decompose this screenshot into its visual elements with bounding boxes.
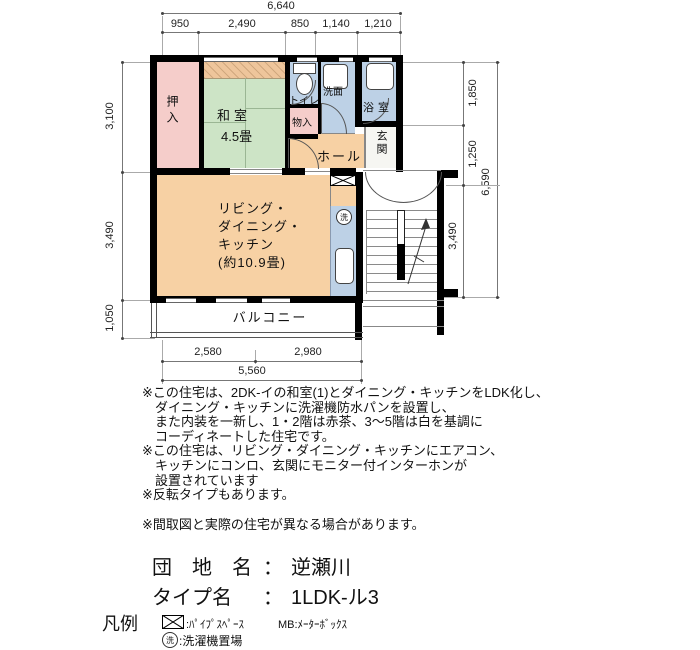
dim-tick <box>161 379 164 382</box>
stair-edge-line <box>366 210 367 294</box>
dim-ext <box>122 172 150 173</box>
wall <box>199 62 204 168</box>
landing-line <box>363 326 444 327</box>
pipe-space-icon <box>330 175 356 186</box>
hall-door-leaf <box>288 138 289 168</box>
label-senmen: 洗面 <box>323 83 343 98</box>
landing-line <box>363 306 444 307</box>
washing-machine-label: 洗 <box>340 212 348 223</box>
dim-tick <box>462 124 465 127</box>
dim-line <box>497 62 498 297</box>
window <box>166 298 196 303</box>
balcony-rail-line <box>150 337 363 338</box>
wall <box>444 170 458 178</box>
label-monoire: 物入 <box>292 114 312 129</box>
window <box>339 57 353 62</box>
wall <box>355 303 362 340</box>
dim-left-2: 1,050 <box>104 293 116 343</box>
window <box>262 298 290 303</box>
wall <box>330 168 356 175</box>
dim-tick <box>496 296 499 299</box>
balcony-rail-line <box>150 332 363 333</box>
dim-tick <box>462 61 465 64</box>
type-colon: ： <box>263 581 283 610</box>
note-line: ダイニング・キッチンに洗濯機防水パンを設置し、 <box>142 401 549 416</box>
landing-line <box>363 300 444 301</box>
danchi-colon: ： <box>263 551 283 580</box>
dim-bottom-seg-0: 2,580 <box>178 346 238 358</box>
type-name-value: 1LDK-ル3 <box>291 581 379 610</box>
dim-line <box>162 361 361 362</box>
dim-bottom-seg-1: 2,980 <box>278 346 338 358</box>
label-balcony: バルコニー <box>210 307 330 326</box>
stair-door-left-arc <box>365 172 404 203</box>
legend-laundry-label: :洗濯機置場 <box>179 632 242 649</box>
dim-tick <box>161 12 164 15</box>
legend-mb-label: MB:ﾒｰﾀｰﾎﾞｯｸｽ <box>278 616 347 632</box>
dim-tick <box>360 360 363 363</box>
note-line: ※反転タイプもあります。 <box>142 488 549 503</box>
dim-tick <box>161 360 164 363</box>
danchi-name-label: 団 地 名 <box>152 551 252 580</box>
dim-tick <box>496 61 499 64</box>
dim-ext <box>122 62 150 63</box>
note-line: 設置されています <box>142 474 549 489</box>
dim-line <box>122 62 123 338</box>
dim-ext <box>122 338 155 339</box>
dim-tick <box>121 61 124 64</box>
dim-ext <box>446 185 500 186</box>
dim-ext <box>285 34 286 55</box>
wall <box>150 168 230 175</box>
label-hall: ホール <box>317 146 362 165</box>
dim-left-0: 3,100 <box>104 91 116 141</box>
dim-tick <box>314 31 317 34</box>
legend-pipe-space-label: :ﾊﾟｲﾌﾟｽﾍﾟｰｽ <box>186 616 244 632</box>
label-ldk-line4: (約10.9畳) <box>218 254 302 272</box>
dim-left-1: 3,490 <box>104 210 116 260</box>
washing-machine-icon: 洗 <box>336 209 352 225</box>
dim-ext <box>198 34 199 55</box>
bathtub-icon <box>366 63 394 90</box>
notes-block: ※この住宅は、2DK-イの和室(1)とダイニング・キッチンをLDK化し、 ダイニ… <box>142 386 549 532</box>
note-line: ※この住宅は、リビング・ダイニング・キッチンにエアコン、 <box>142 444 549 459</box>
danchi-name-value: 逆瀬川 <box>291 551 351 580</box>
hall-ldk-line <box>305 171 330 172</box>
wall <box>444 289 458 297</box>
wall <box>150 55 157 303</box>
dim-line <box>162 13 400 14</box>
balcony-side-line <box>151 303 152 337</box>
dim-tick <box>356 31 359 34</box>
dim-tick <box>360 379 363 382</box>
dim-top-total: 6,640 <box>251 0 311 12</box>
dim-ext <box>403 125 465 126</box>
label-washitsu: 和室 <box>217 105 251 124</box>
label-washitsu-size: 4.5畳 <box>221 126 252 145</box>
genkan-threshold-line <box>363 170 441 171</box>
wall <box>437 170 444 335</box>
kitchen-sink-icon <box>335 248 354 284</box>
dim-tick <box>161 31 164 34</box>
washing-machine-legend-symbol: 洗 <box>166 635 174 646</box>
dim-bottom-total: 5,560 <box>222 365 282 377</box>
type-name-label: タイプ名 <box>152 581 232 610</box>
dim-line <box>463 62 464 297</box>
kitchen-strip-line <box>330 186 331 206</box>
dim-tick <box>121 299 124 302</box>
window <box>216 298 247 303</box>
dim-right-0: 1,850 <box>467 68 479 118</box>
balcony-side-line <box>156 303 157 337</box>
label-genkan: 玄関 <box>373 130 389 156</box>
dim-ext <box>122 300 150 301</box>
dim-right-1: 1,250 <box>467 129 479 179</box>
dim-tick <box>121 171 124 174</box>
window <box>297 57 317 62</box>
window <box>204 57 278 62</box>
label-toilet: トイレ <box>289 92 319 107</box>
note-line: また内装を一新し、1・2階は赤茶、3～5階は白を基調に <box>142 415 549 430</box>
fusuma-line <box>230 169 282 170</box>
label-ldk-line1: リビング・ <box>218 200 302 218</box>
label-oshiire: 押入 <box>164 95 181 127</box>
dim-top-seg-0: 950 <box>150 18 210 30</box>
stair-direction-arrow <box>402 216 436 288</box>
dim-tick <box>197 31 200 34</box>
dim-ext <box>403 62 500 63</box>
dim-tick <box>399 31 402 34</box>
dim-ext <box>162 16 163 55</box>
wall <box>396 55 403 172</box>
wall <box>282 168 290 175</box>
note-line: ※この住宅は、2DK-イの和室(1)とダイニング・キッチンをLDK化し、 <box>142 386 549 401</box>
dim-ext <box>357 34 358 55</box>
dim-top-seg-4: 1,210 <box>348 18 408 30</box>
dim-right-total: 6,590 <box>480 157 492 207</box>
label-ldk-line2: ダイニング・ <box>218 218 302 236</box>
label-ldk-line3: キッチン <box>218 236 302 254</box>
dim-ext <box>444 297 500 298</box>
senmen-door-leaf <box>321 103 322 133</box>
dim-tick <box>399 12 402 15</box>
dim-ext <box>315 34 316 55</box>
dim-tick <box>462 296 465 299</box>
hall-genkan-line <box>364 127 366 168</box>
dim-tick <box>284 31 287 34</box>
dim-tick <box>254 360 257 363</box>
legend-title: 凡例 <box>102 610 138 636</box>
fusuma-line <box>230 173 282 174</box>
dim-tick <box>462 184 465 187</box>
wall <box>355 55 362 127</box>
note-line: ※間取図と実際の住宅が異なる場合があります。 <box>142 518 549 533</box>
dim-line <box>162 380 361 381</box>
wall <box>356 172 363 303</box>
floor-plan-page: 洗 <box>0 0 700 650</box>
note-line: キッチンにコンロ、玄関にモニター付インターホンが <box>142 459 549 474</box>
dim-top-seg-1: 2,490 <box>212 18 272 30</box>
washitsu-closet-strip <box>204 62 285 79</box>
dim-right-2: 3,490 <box>447 211 459 261</box>
window <box>369 57 392 62</box>
pipe-space-legend-icon <box>162 615 184 629</box>
dim-ext <box>400 16 401 55</box>
note-line: コーディネートした住宅です。 <box>142 430 549 445</box>
dim-tick <box>121 337 124 340</box>
label-ldk: リビング・ ダイニング・ キッチン (約10.9畳) <box>218 200 302 272</box>
washing-machine-legend-icon: 洗 <box>162 632 178 648</box>
label-bathroom: 浴室 <box>363 99 393 115</box>
